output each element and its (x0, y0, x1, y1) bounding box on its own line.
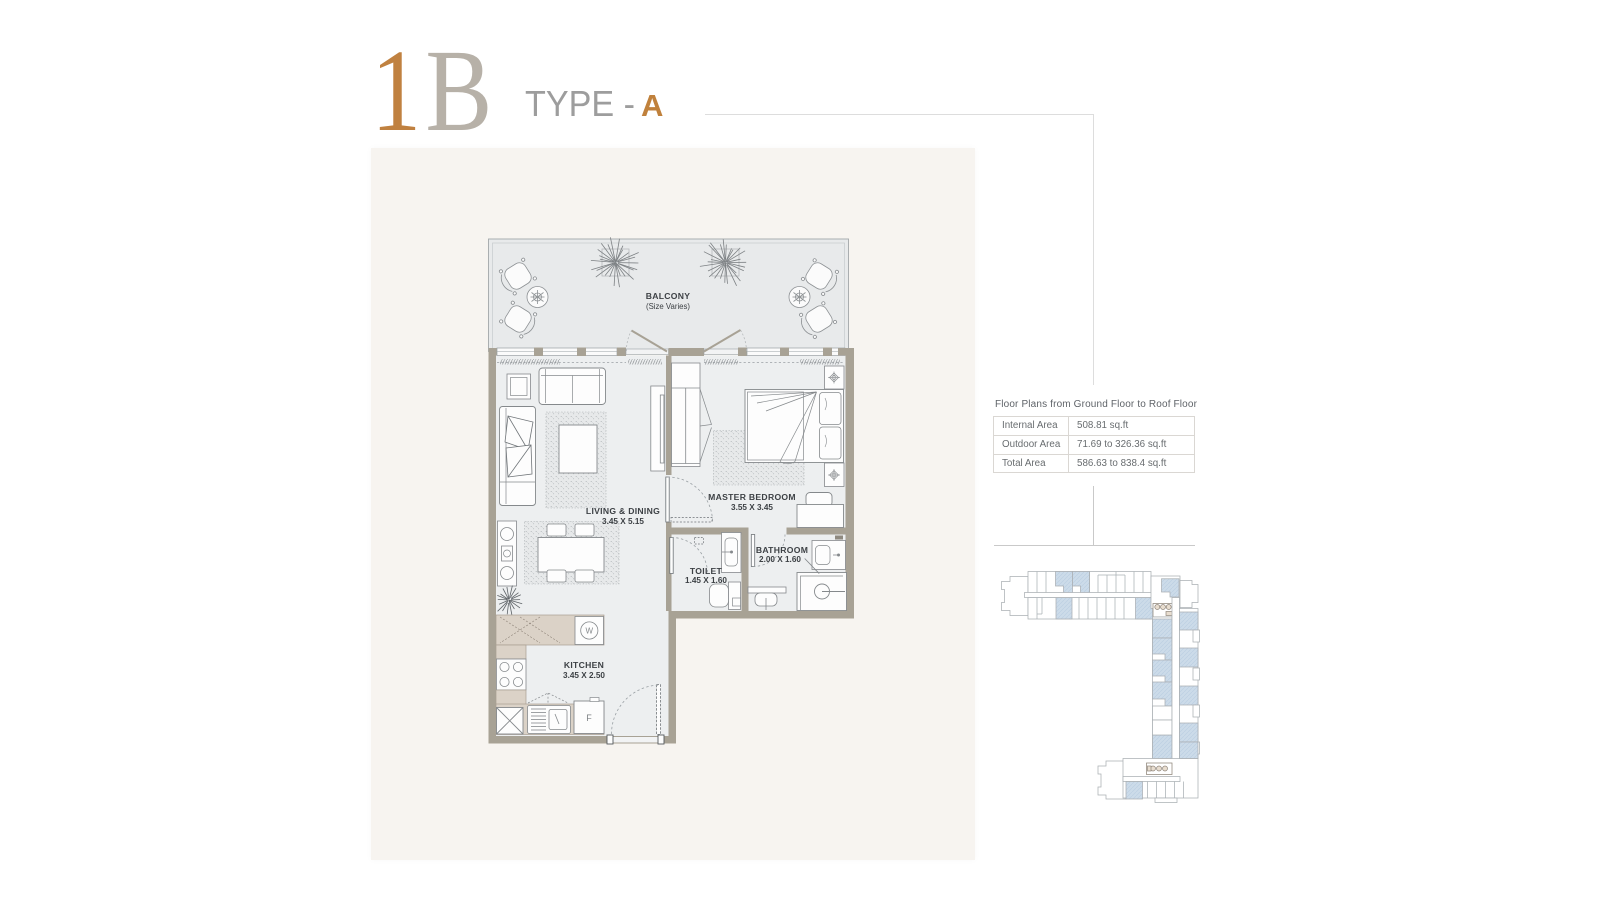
svg-text:3.45 X 5.15: 3.45 X 5.15 (602, 517, 644, 526)
svg-text:BALCONY: BALCONY (646, 291, 691, 301)
svg-text:(Size Varies): (Size Varies) (646, 302, 690, 311)
svg-text:LIVING & DINING: LIVING & DINING (586, 506, 660, 516)
svg-text:W: W (586, 627, 594, 636)
svg-text:A: A (641, 88, 663, 123)
svg-text:1.45 X 1.60: 1.45 X 1.60 (685, 576, 727, 585)
svg-text:MASTER BEDROOM: MASTER BEDROOM (708, 492, 796, 502)
svg-text:2.00 X 1.60: 2.00 X 1.60 (759, 555, 801, 564)
svg-text:KITCHEN: KITCHEN (564, 660, 604, 670)
svg-text:F: F (586, 713, 592, 723)
svg-text:TYPE -: TYPE - (525, 83, 635, 124)
svg-text:3.45 X 2.50: 3.45 X 2.50 (563, 671, 605, 680)
svg-text:TOILET: TOILET (690, 566, 723, 576)
svg-text:BATHROOM: BATHROOM (756, 545, 808, 555)
svg-text:3.55 X 3.45: 3.55 X 3.45 (731, 503, 773, 512)
